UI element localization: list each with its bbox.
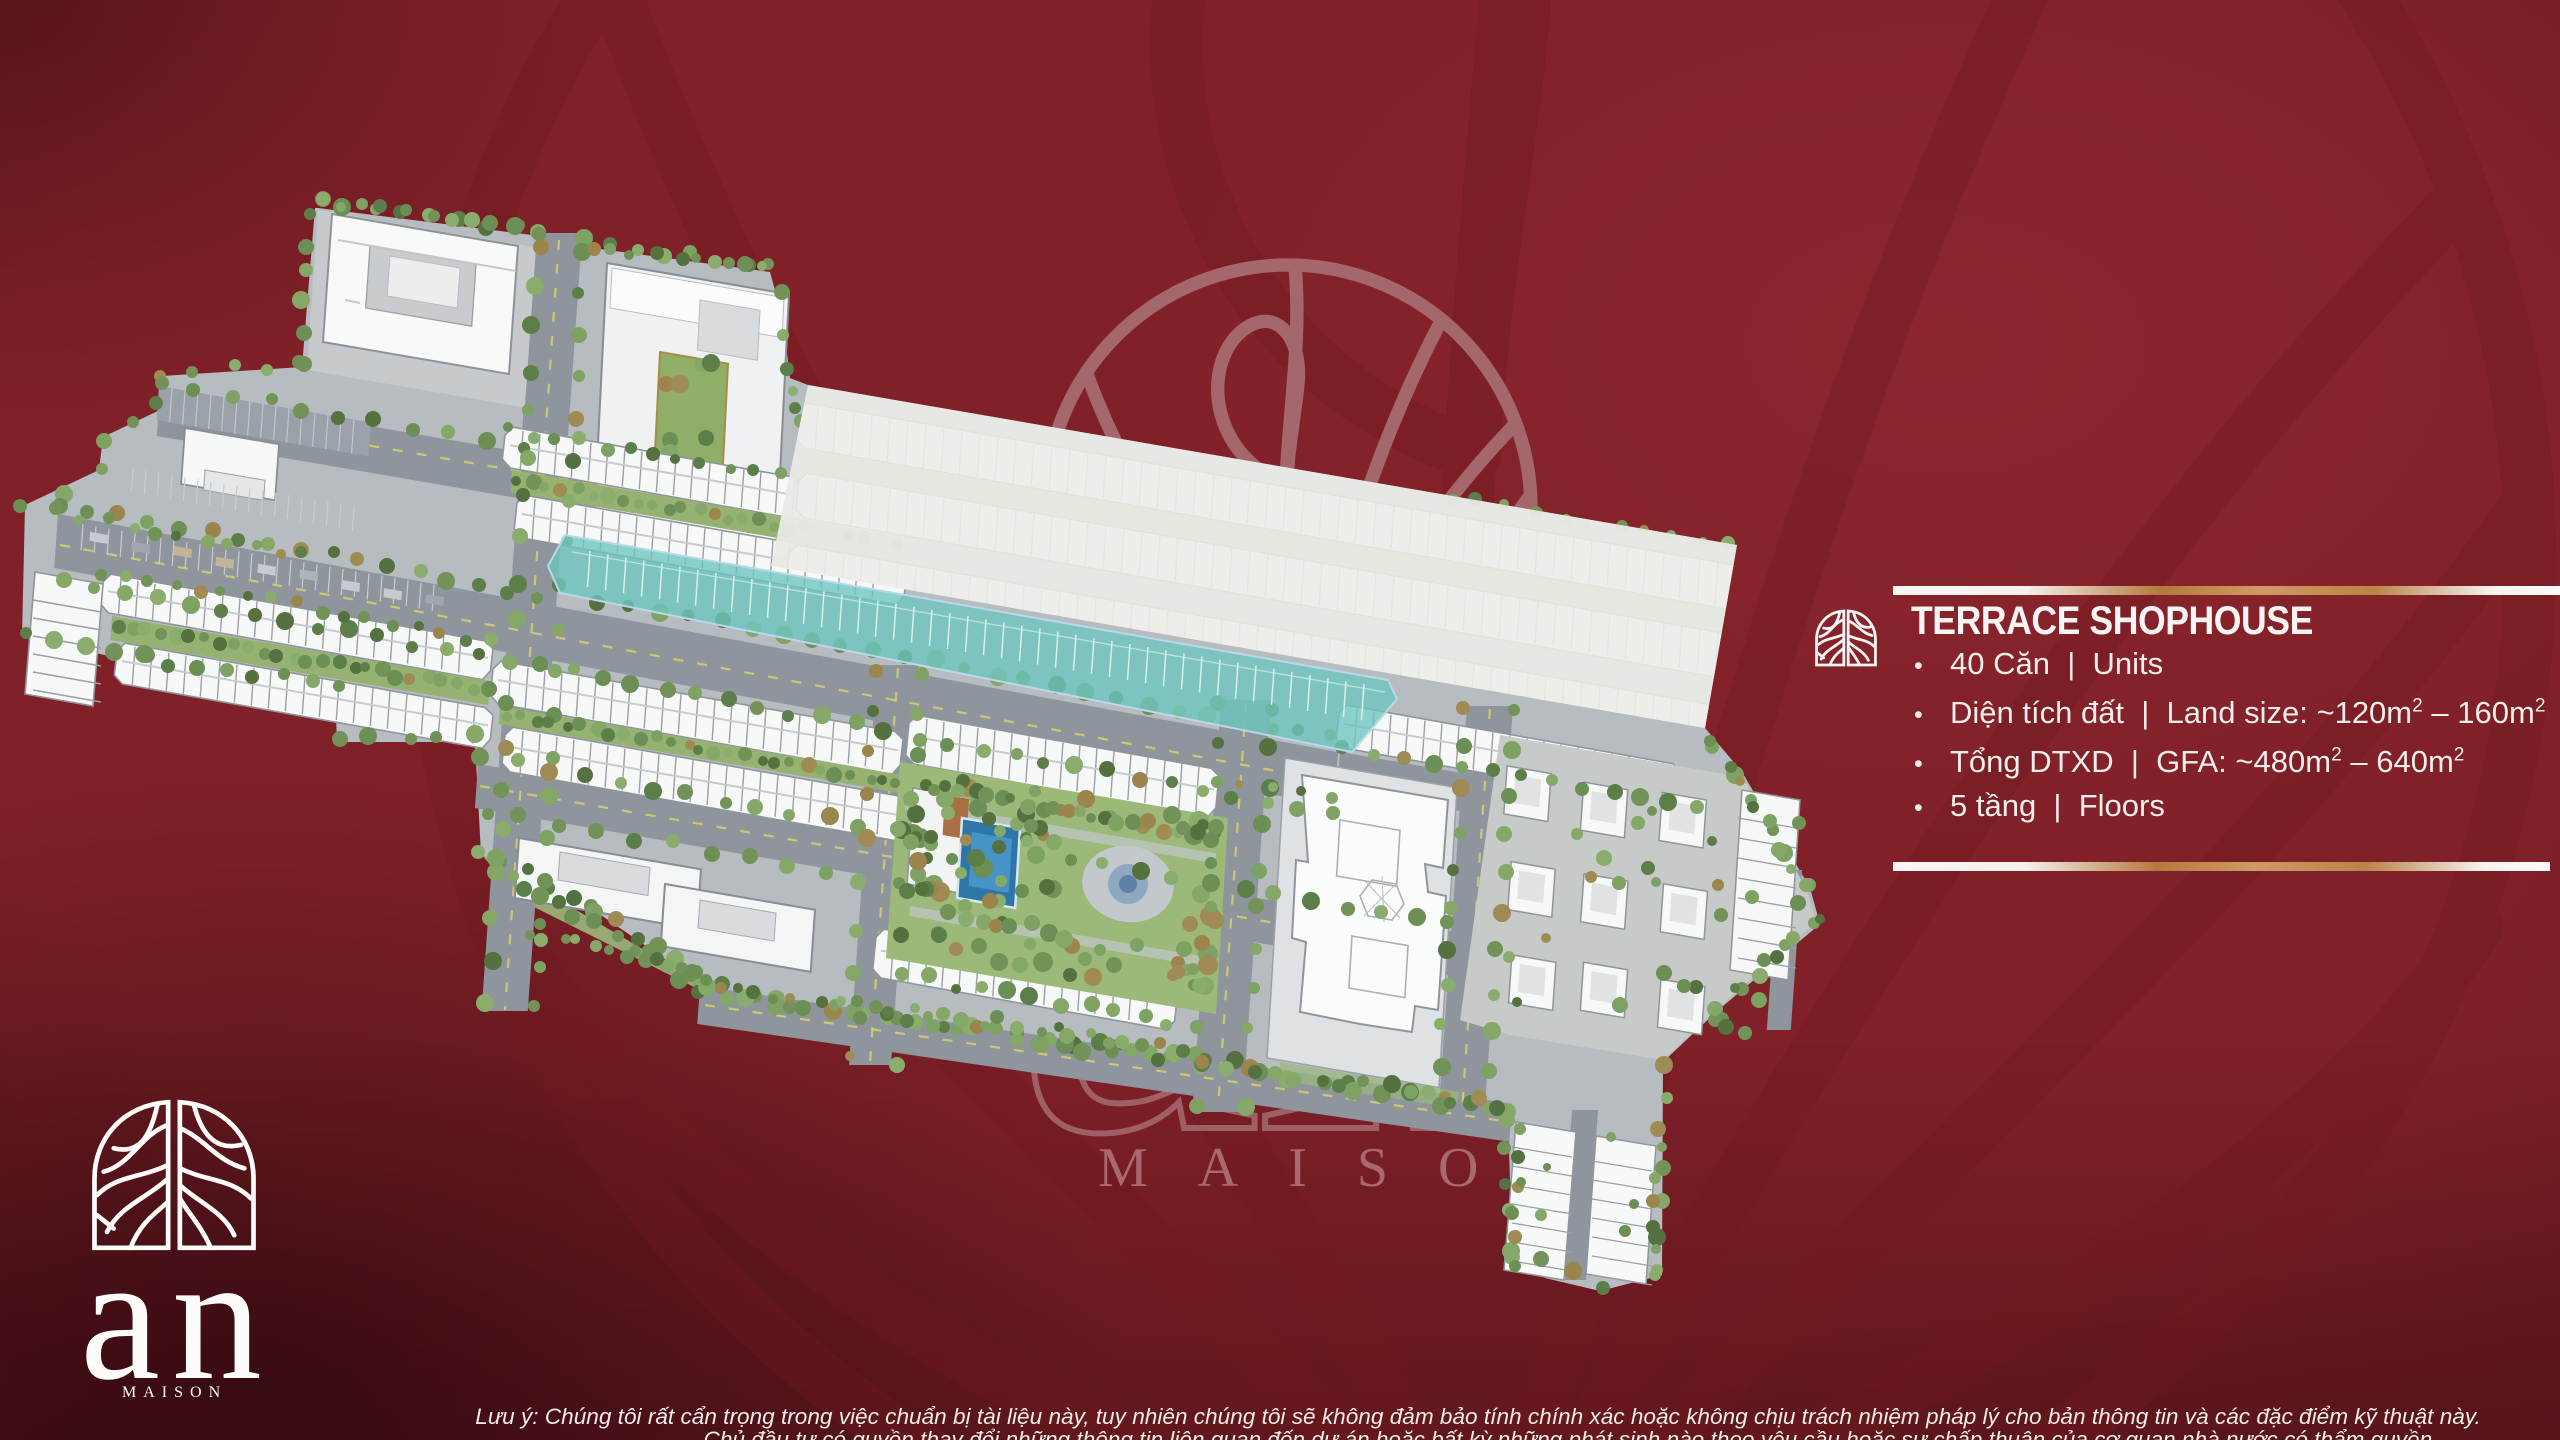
svg-text:Chủ đầu tư có quyền thay đổi n: Chủ đầu tư có quyền thay đổi những thông… — [704, 1427, 2439, 1440]
svg-text:Lưu ý: Chúng tôi rất cẩn trọng: Lưu ý: Chúng tôi rất cẩn trọng trong việ… — [475, 1404, 2480, 1429]
